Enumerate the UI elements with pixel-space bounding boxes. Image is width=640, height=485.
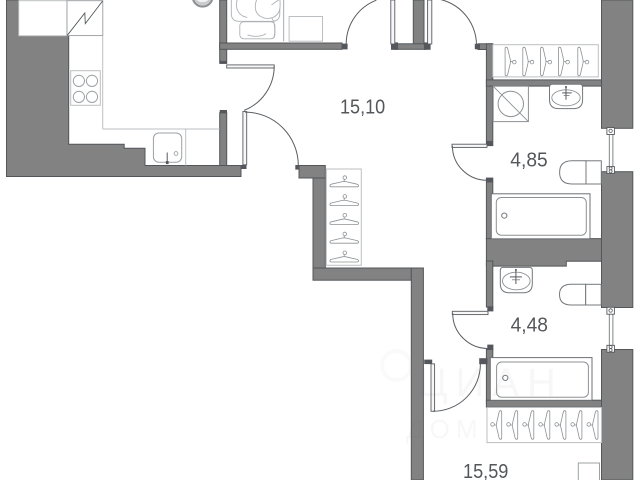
svg-text:ЦИАН: ЦИАН [418, 361, 564, 405]
svg-text:4,85: 4,85 [510, 150, 547, 172]
svg-text:15,10: 15,10 [340, 97, 385, 119]
svg-text:15,59: 15,59 [463, 461, 508, 480]
svg-text:4,48: 4,48 [511, 315, 548, 337]
svg-text:ДОМ: ДОМ [406, 414, 484, 444]
